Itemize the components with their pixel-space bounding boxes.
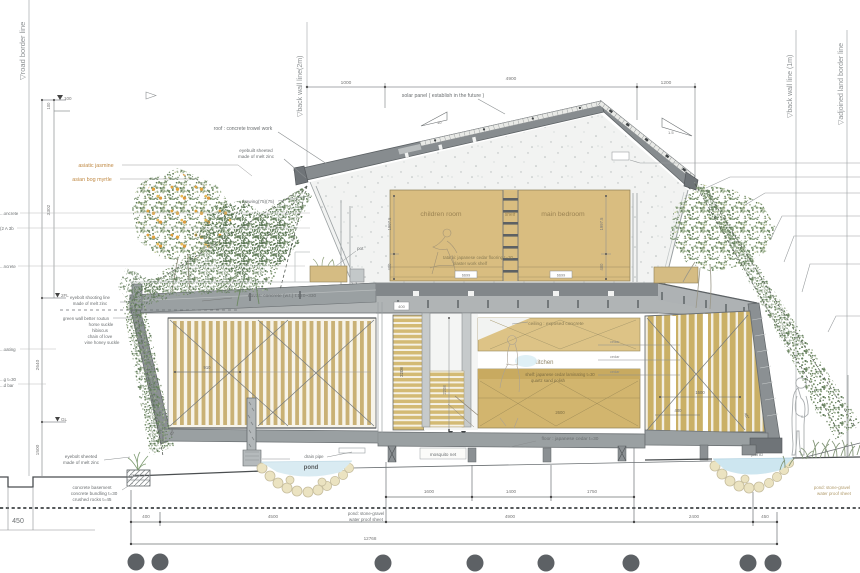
svg-text:▽adjoined land border line: ▽adjoined land border line xyxy=(838,43,845,125)
svg-text:100: 100 xyxy=(64,96,72,101)
svg-text:1400: 1400 xyxy=(506,489,517,494)
svg-text:12768: 12768 xyxy=(364,536,377,541)
svg-text:shelf: japanese cedar laminati: shelf: japanese cedar laminating t=30 xyxy=(525,372,595,377)
svg-text:1997.5: 1997.5 xyxy=(387,217,392,230)
svg-text:2600: 2600 xyxy=(555,410,565,415)
svg-text:vine honey suckle: vine honey suckle xyxy=(85,340,120,345)
svg-text:2208: 2208 xyxy=(442,385,447,395)
svg-text:1200: 1200 xyxy=(661,80,672,86)
svg-text:4900: 4900 xyxy=(505,514,516,519)
svg-text:450: 450 xyxy=(12,518,24,525)
svg-text:6699: 6699 xyxy=(462,274,470,278)
svg-text:asian bog myrtle: asian bog myrtle xyxy=(72,177,112,183)
svg-text:children room: children room xyxy=(420,211,462,218)
svg-text:made of melt zinc: made of melt zinc xyxy=(63,460,100,465)
svg-text:...oncrete: ...oncrete xyxy=(0,211,19,216)
svg-text:pond: pond xyxy=(304,465,319,471)
svg-text:ceiling : exposed concrete: ceiling : exposed concrete xyxy=(528,321,584,327)
svg-text:910: 910 xyxy=(204,365,212,370)
svg-text:2640: 2640 xyxy=(35,359,41,370)
svg-text:cedar: cedar xyxy=(610,340,620,344)
svg-text:400: 400 xyxy=(599,263,604,271)
svg-text:2FL: 2FL xyxy=(61,293,69,298)
svg-text:400: 400 xyxy=(142,514,150,519)
svg-text:tatami: japanese cedar floorin: tatami: japanese cedar flooring t=30 xyxy=(443,255,513,260)
svg-text:400: 400 xyxy=(675,408,683,413)
svg-text:...g t=30: ...g t=30 xyxy=(0,377,17,382)
svg-text:main bedroom: main bedroom xyxy=(541,211,585,218)
svg-text:1500: 1500 xyxy=(695,390,705,395)
svg-text:kitchen: kitchen xyxy=(534,360,553,366)
svg-text:solar panel ( establish in the: solar panel ( establish in the future ) xyxy=(402,93,485,99)
svg-text:GL: GL xyxy=(61,417,68,422)
svg-text:chain of love: chain of love xyxy=(88,334,113,339)
svg-text:400: 400 xyxy=(398,304,405,309)
svg-text:1000: 1000 xyxy=(341,80,352,86)
svg-text:2400: 2400 xyxy=(689,514,700,519)
svg-text:eyebolt sheeted: eyebolt sheeted xyxy=(65,454,98,459)
svg-text:...ncrete: ...ncrete xyxy=(0,264,16,269)
svg-text:3302: 3302 xyxy=(46,204,52,215)
svg-text:mosquito net: mosquito net xyxy=(430,452,457,457)
svg-text:1500: 1500 xyxy=(35,444,41,455)
svg-text:green wall better routun: green wall better routun xyxy=(63,316,110,321)
svg-text:▽back wall line (1m): ▽back wall line (1m) xyxy=(787,55,794,118)
svg-text:4900: 4900 xyxy=(506,76,517,82)
svg-text:...d bar: ...d bar xyxy=(0,383,14,388)
svg-text:...oating: ...oating xyxy=(0,347,16,352)
svg-text:pond: stone-gravel: pond: stone-gravel xyxy=(814,485,850,490)
svg-text:1.5: 1.5 xyxy=(668,130,674,135)
svg-text:cedar: cedar xyxy=(610,370,620,374)
svg-text:water proof sheet: water proof sheet xyxy=(817,491,852,496)
svg-text:floor : japanese cedar t=30: floor : japanese cedar t=30 xyxy=(542,436,599,442)
svg-text:plaster work shelf: plaster work shelf xyxy=(453,261,488,266)
svg-text:▽back wall line(2m): ▽back wall line(2m) xyxy=(297,56,304,117)
svg-text:cedar: cedar xyxy=(610,355,620,359)
svg-text:400: 400 xyxy=(387,263,392,271)
svg-text:1750: 1750 xyxy=(587,489,598,494)
svg-text:10: 10 xyxy=(437,120,442,125)
svg-text:shelf: shelf xyxy=(505,212,516,218)
svg-text:(2 A 3b: (2 A 3b xyxy=(0,226,14,231)
svg-text:concrete bundling t=30: concrete bundling t=30 xyxy=(71,491,118,496)
svg-text:pond: stone-gravel: pond: stone-gravel xyxy=(348,511,384,516)
svg-text:4500: 4500 xyxy=(268,514,279,519)
svg-text:1997.5: 1997.5 xyxy=(599,217,604,230)
svg-text:2208: 2208 xyxy=(399,367,404,377)
svg-text:drain pipe: drain pipe xyxy=(304,454,324,459)
svg-text:made of melt zinc: made of melt zinc xyxy=(73,301,108,306)
svg-text:crushed rocks t=45: crushed rocks t=45 xyxy=(73,497,112,502)
svg-text:▽road border line: ▽road border line xyxy=(18,22,27,80)
svg-text:1600: 1600 xyxy=(424,489,435,494)
svg-text:6699: 6699 xyxy=(557,274,565,278)
svg-text:eyebolt shooting line: eyebolt shooting line xyxy=(70,295,111,300)
svg-text:eyebuilt sheeted: eyebuilt sheeted xyxy=(239,148,273,153)
svg-text:water proof sheet: water proof sheet xyxy=(349,517,384,522)
svg-text:100: 100 xyxy=(46,102,51,110)
svg-text:hibiscus: hibiscus xyxy=(92,328,109,333)
svg-text:quartz sand polish: quartz sand polish xyxy=(531,378,566,383)
svg-text:concrete basement: concrete basement xyxy=(72,485,112,490)
svg-text:pot: pot xyxy=(357,246,364,251)
svg-text:made of melt zinc: made of melt zinc xyxy=(238,154,275,159)
svg-text:450: 450 xyxy=(761,514,769,519)
svg-text:horse suckle: horse suckle xyxy=(89,322,114,327)
svg-text:roof : concrete trowel work: roof : concrete trowel work xyxy=(214,126,273,132)
svg-text:asiatic jasmine: asiatic jasmine xyxy=(78,163,113,169)
